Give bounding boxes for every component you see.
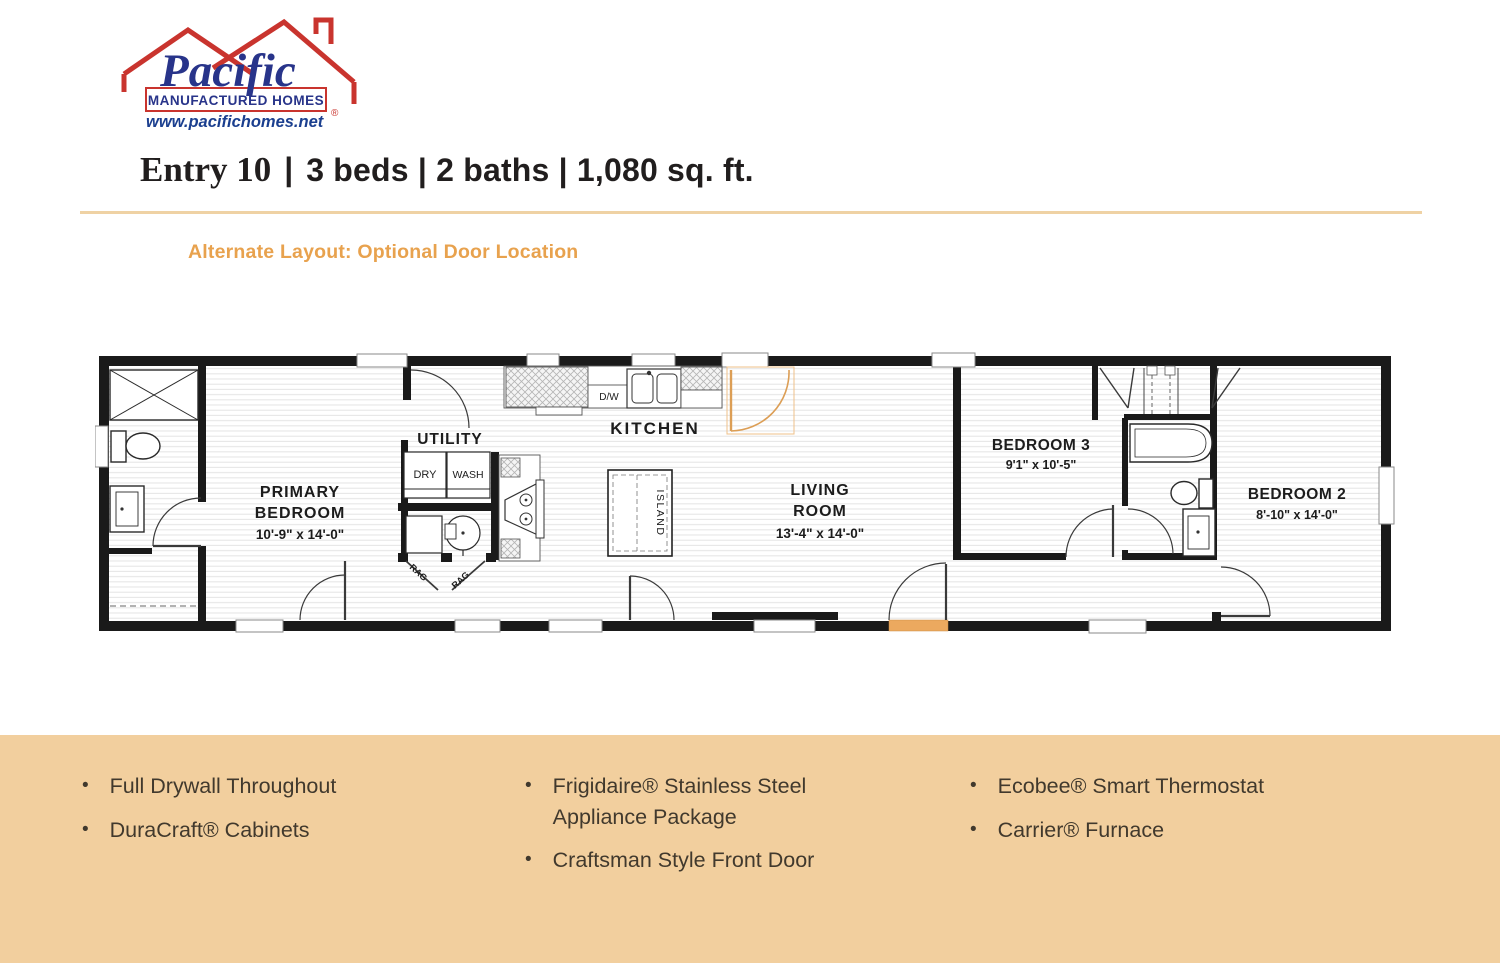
toilet-bowl (1171, 482, 1197, 505)
bullet-icon: • (82, 815, 89, 846)
floor-plan: PRIMARY BEDROOM 10'-9" x 14'-0" UTILITY … (95, 350, 1405, 642)
feature-text: Full Drywall Throughout (110, 771, 337, 802)
feature-text: Frigidaire® Stainless Steel Appliance Pa… (553, 771, 877, 832)
bullet-icon: • (525, 771, 532, 832)
feature-item: • Ecobee® Smart Thermostat (970, 771, 1400, 802)
toilet-tank (1199, 479, 1213, 508)
dryer-label: DRY (413, 469, 437, 481)
washer-label: WASH (452, 469, 483, 481)
island-label: ISLAND (654, 490, 666, 537)
logo-url: www.pacifichomes.net (146, 113, 325, 130)
title-separator: | (284, 151, 293, 187)
range-front (536, 407, 582, 415)
pacific-logo: MANUFACTURED HOMES Pacific ® www.pacific… (116, 12, 366, 130)
faucet (1196, 530, 1199, 533)
feature-text: Craftsman Style Front Door (553, 845, 815, 876)
primary-bedroom-label: PRIMARY (260, 484, 340, 501)
bullet-icon: • (525, 845, 532, 876)
features-column-3: • Ecobee® Smart Thermostat • Carrier® Fu… (970, 771, 1400, 858)
brochure-page: MANUFACTURED HOMES Pacific ® www.pacific… (0, 0, 1500, 963)
toilet-tank (111, 431, 126, 462)
furnace-box (406, 516, 442, 553)
bullet-icon: • (82, 771, 89, 802)
bedroom2-dims: 8'-10" x 14'-0" (1256, 508, 1338, 522)
bullet-icon: • (970, 771, 977, 802)
feature-item: • Frigidaire® Stainless Steel Appliance … (525, 771, 877, 832)
logo-brand: Pacific (159, 45, 296, 97)
bedroom3-label: BEDROOM 3 (992, 437, 1090, 454)
bedroom2-label: BEDROOM 2 (1248, 486, 1346, 503)
tan-divider-rule (80, 211, 1422, 214)
features-column-2: • Frigidaire® Stainless Steel Appliance … (525, 771, 877, 889)
living-room-dims: 13'-4" x 14'-0" (776, 526, 864, 541)
features-band: • Full Drywall Throughout • DuraCraft® C… (0, 735, 1500, 963)
living-room-label: LIVING (790, 482, 849, 499)
logo-registered-mark: ® (331, 108, 339, 119)
svg-text:ROOM: ROOM (793, 503, 847, 520)
optional-door-highlight (889, 620, 948, 631)
kitchen-label: KITCHEN (610, 419, 700, 438)
bullet-icon: • (970, 815, 977, 846)
toilet-bowl (126, 433, 160, 459)
feature-item: • Full Drywall Throughout (82, 771, 512, 802)
primary-bedroom-dims: 10'-9" x 14'-0" (256, 527, 344, 542)
sink-faucet (647, 371, 651, 375)
counter-hatch (506, 367, 588, 407)
feature-item: • Carrier® Furnace (970, 815, 1400, 846)
model-specs: 3 beds | 2 baths | 1,080 sq. ft. (306, 152, 754, 188)
feature-text: Carrier® Furnace (998, 815, 1164, 846)
faucet (120, 507, 123, 510)
feature-text: Ecobee® Smart Thermostat (998, 771, 1264, 802)
bathtub (1130, 424, 1212, 462)
svg-text:BEDROOM: BEDROOM (255, 505, 346, 522)
utility-label: UTILITY (417, 431, 483, 448)
bedroom3-dims: 9'1" x 10'-5" (1006, 458, 1077, 472)
feature-item: • Craftsman Style Front Door (525, 845, 877, 876)
feature-text: DuraCraft® Cabinets (110, 815, 310, 846)
alternate-layout-note: Alternate Layout: Optional Door Location (188, 241, 578, 264)
feature-item: • DuraCraft® Cabinets (82, 815, 512, 846)
sink-basin (116, 492, 138, 526)
page-title: Entry 10|3 beds | 2 baths | 1,080 sq. ft… (140, 150, 754, 190)
features-column-1: • Full Drywall Throughout • DuraCraft® C… (82, 771, 512, 858)
model-name: Entry 10 (140, 150, 271, 189)
dishwasher-label: D/W (599, 392, 619, 403)
